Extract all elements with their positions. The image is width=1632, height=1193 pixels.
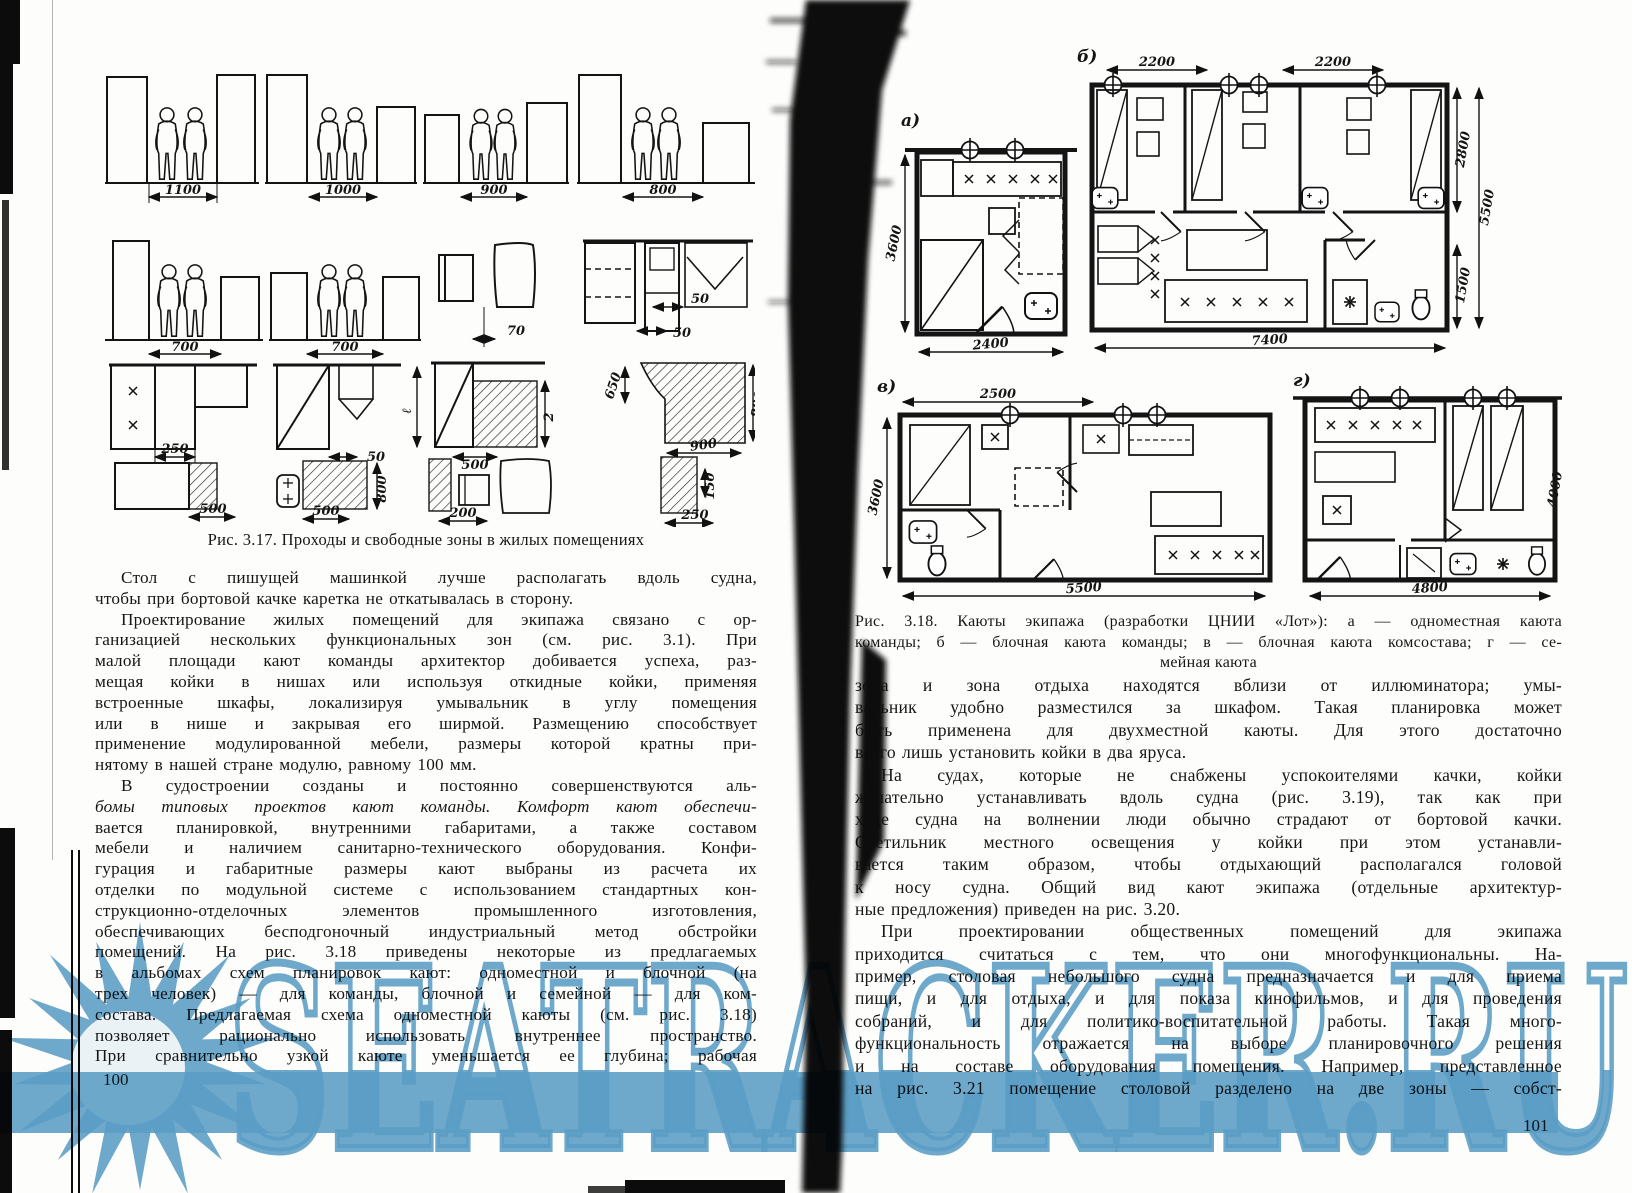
- watermark: SEATRACKER.RU SEATRACKER.RU: [0, 0, 1632, 1193]
